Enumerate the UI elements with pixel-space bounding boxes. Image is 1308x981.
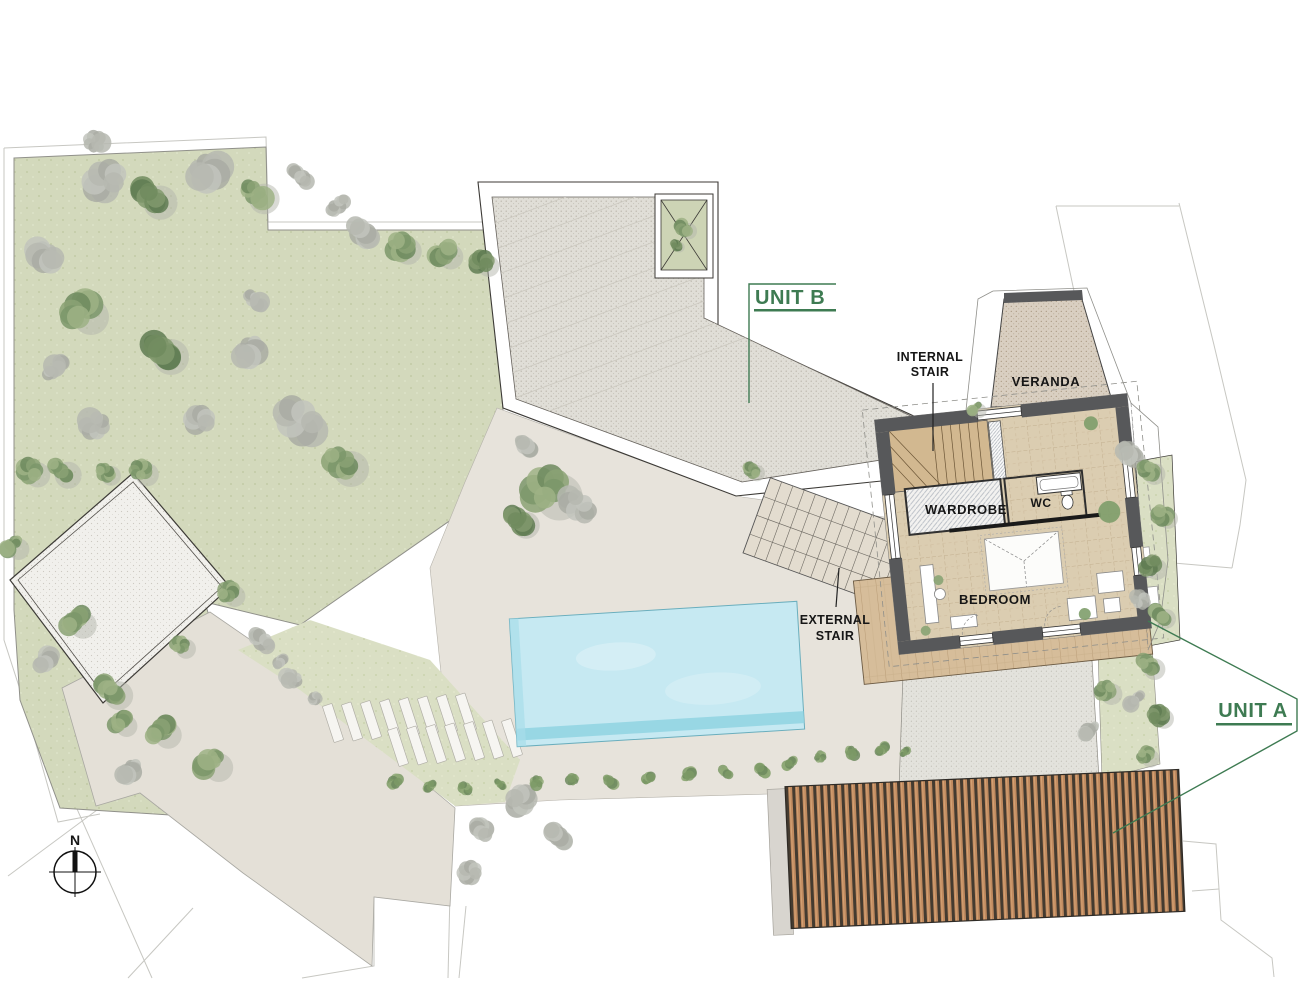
north-needle <box>73 851 78 872</box>
site-plan-canvas: WARDROBE WC BEDROOM VERANDA UNIT B UNIT … <box>0 0 1308 981</box>
north-label: N <box>70 832 80 848</box>
unit-a-label: UNIT A <box>1218 700 1288 722</box>
internal-stair-label-line1: INTERNAL <box>897 350 963 364</box>
wardrobe-label: WARDROBE <box>925 502 1007 517</box>
external-stair-label-line2: STAIR <box>816 629 855 643</box>
courtyard <box>899 660 1099 789</box>
unit-b-label: UNIT B <box>755 287 825 309</box>
internal-stair-label-line2: STAIR <box>911 365 950 379</box>
site-plan-page: WARDROBE WC BEDROOM VERANDA UNIT B UNIT … <box>0 0 1308 981</box>
external-stair-label-line1: EXTERNAL <box>800 613 871 627</box>
bedroom-label: BEDROOM <box>959 592 1031 607</box>
slatted-roof <box>767 769 1185 935</box>
veranda-label: VERANDA <box>1012 374 1080 389</box>
pool <box>509 601 804 746</box>
unit-a-building <box>862 381 1163 666</box>
wc-label: WC <box>1031 496 1052 510</box>
